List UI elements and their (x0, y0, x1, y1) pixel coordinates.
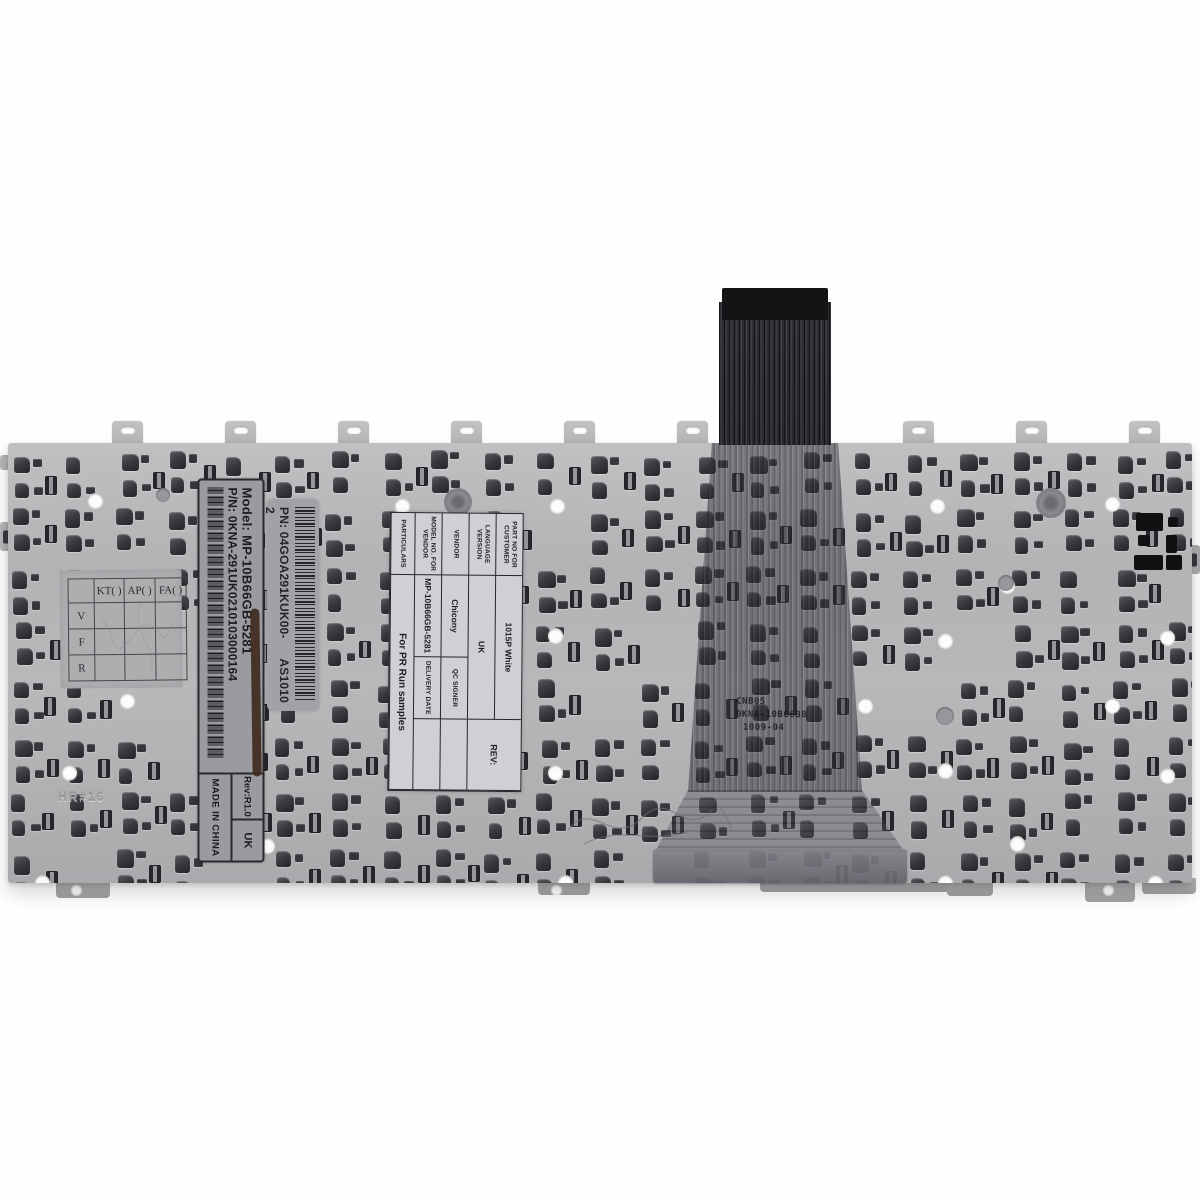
plate-hole (1103, 884, 1114, 895)
key-hook-square (665, 540, 675, 548)
mounting-tab-slot (1024, 426, 1039, 434)
key-hook (333, 477, 349, 493)
plate-hole (1148, 875, 1163, 883)
key-hook (536, 853, 551, 871)
key-hook-square (876, 765, 885, 774)
key-hook-square (664, 513, 673, 520)
key-hook (590, 567, 605, 584)
key-hook (642, 684, 660, 702)
key-hook-square (351, 454, 359, 462)
key-hook-square (35, 626, 45, 634)
spec-qc-signer-cell: QC SIGNER (440, 657, 468, 719)
key-slot (570, 590, 582, 608)
key-hook-square (32, 510, 41, 518)
key-hook (15, 708, 30, 725)
key-hook (910, 852, 924, 870)
cable-stamp-line3: 1009-04 (736, 722, 807, 736)
key-hook (1060, 571, 1077, 589)
key-hook-square (345, 544, 355, 551)
key-hook-square (1031, 571, 1041, 579)
key-hook (853, 651, 866, 666)
key-hook (485, 880, 499, 883)
key-hook-square (346, 627, 355, 634)
key-hook (326, 540, 343, 557)
key-hook-square (1030, 766, 1038, 774)
key-hook (432, 476, 449, 493)
key-hook (327, 623, 344, 640)
mounting-tab-slot (911, 426, 926, 434)
key-hook (911, 821, 927, 838)
key-hook (15, 483, 29, 499)
key-hook-square (664, 572, 673, 580)
key-slot (890, 532, 902, 551)
key-hook (123, 818, 137, 834)
key-hook (960, 454, 978, 470)
key-hook-square (136, 538, 144, 547)
key-hook (170, 451, 187, 469)
key-hook-square (1189, 652, 1192, 660)
key-hook (1119, 596, 1134, 612)
key-hook-square (1034, 855, 1043, 863)
plate-hole (551, 884, 562, 895)
key-hook (328, 594, 341, 611)
key-hook-square (557, 575, 566, 583)
plate-hole (88, 493, 103, 508)
key-hook (332, 793, 347, 811)
key-hook-square (1080, 628, 1090, 636)
key-hook (644, 458, 660, 477)
key-hook (645, 569, 660, 587)
key-slot (987, 758, 999, 777)
key-hook-square (351, 742, 361, 749)
origin-cell: MADE IN CHINA (200, 775, 231, 861)
key-hook-square (344, 516, 352, 524)
plate-cutout (1166, 535, 1177, 553)
key-hook-square (615, 769, 624, 777)
key-hook (386, 822, 403, 839)
key-hook (277, 820, 293, 837)
key-hook (1061, 626, 1079, 643)
spec-row-label-2: VENDOR (441, 513, 469, 575)
key-hook (539, 597, 556, 612)
plate-cutout (1168, 517, 1178, 527)
key-hook-square (33, 459, 42, 468)
key-hook (909, 762, 926, 779)
key-hook-square (296, 881, 305, 883)
key-hook-square (977, 539, 986, 548)
key-hook-square (456, 825, 465, 832)
rev-cell: Rev:R1.0 (231, 775, 263, 821)
key-hook-square (875, 738, 883, 746)
key-slot (987, 587, 999, 606)
key-hook (333, 764, 348, 780)
key-hook-square (1084, 511, 1093, 518)
key-slot (148, 762, 160, 780)
key-hook (275, 456, 290, 473)
key-hook (436, 849, 450, 866)
key-hook (1015, 478, 1031, 495)
spec-row-label-1: LANGUAGE VERSION (468, 514, 496, 576)
key-hook-square (1086, 456, 1096, 464)
language-cell: UK (231, 821, 263, 861)
key-hook-square (90, 824, 99, 832)
key-hook-square (35, 770, 44, 778)
key-hook (591, 514, 608, 532)
key-hook (592, 540, 608, 555)
key-hook-square (1087, 483, 1096, 491)
key-hook (437, 821, 450, 838)
key-hook-square (295, 486, 305, 493)
key-hook-square (981, 713, 989, 722)
key-hook-square (661, 686, 669, 695)
plate-hole (548, 628, 563, 643)
key-slot (992, 872, 1004, 883)
key-slot (519, 817, 531, 835)
plate-hole (858, 698, 873, 713)
spec-row-label-4: PARTICULARS (390, 513, 415, 575)
key-hook (327, 568, 342, 584)
key-hook-square (87, 712, 96, 719)
key-hook-square (980, 857, 989, 866)
key-hook (68, 708, 82, 724)
key-hook (66, 457, 80, 475)
key-hook-square (561, 742, 570, 750)
key-hook-square (871, 629, 880, 637)
key-hook-square (34, 742, 43, 750)
key-hook-square (87, 744, 95, 752)
key-hook-square (922, 574, 930, 582)
key-hook-square (875, 515, 884, 523)
key-slot (672, 703, 684, 722)
key-hook (1009, 706, 1023, 723)
key-hook (905, 515, 921, 534)
spec-particulars-value: For PR Run samples (388, 575, 414, 790)
key-hook-square (1085, 539, 1094, 547)
key-hook (66, 535, 82, 552)
model-pn-label-side: Rev:R1.0 UK MADE IN CHINA (200, 775, 263, 861)
key-slot (576, 760, 588, 780)
key-hook (1166, 451, 1182, 469)
key-hook (963, 795, 979, 813)
key-hook (12, 820, 25, 837)
key-hook (1116, 880, 1131, 883)
key-slot (42, 813, 54, 830)
key-hook-square (504, 455, 513, 464)
key-hook-square (1187, 855, 1192, 863)
plate-hole (550, 498, 565, 513)
key-hook (171, 477, 184, 493)
key-hook (1113, 509, 1128, 528)
spec-row-value-2: Chicony (440, 575, 468, 657)
key-hook-square (610, 518, 619, 527)
key-hook-square (294, 741, 303, 749)
key-hook (646, 595, 661, 611)
key-slot (887, 750, 899, 769)
key-hook (171, 819, 185, 835)
qc-check-table: KT( ) AP( ) FA( ) V F R (59, 569, 182, 688)
plate-cutout (1166, 555, 1182, 570)
key-hook (276, 482, 292, 498)
key-hook-square (870, 573, 879, 581)
mounting-tab-slot (346, 426, 361, 434)
key-slot (569, 467, 581, 485)
key-hook-square (924, 657, 932, 664)
key-hook (539, 705, 556, 722)
key-hook-square (295, 797, 304, 805)
key-hook-square (404, 881, 414, 883)
key-hook-square (979, 457, 988, 466)
key-hook (118, 875, 133, 883)
key-hook-square (294, 459, 304, 468)
key-hook (14, 534, 30, 551)
plate-hole (71, 884, 82, 895)
key-hook-square (346, 572, 356, 580)
plate-hole (548, 765, 563, 780)
key-hook-square (1034, 541, 1043, 548)
key-hook-square (142, 484, 151, 491)
key-slot (885, 473, 897, 491)
key-hook (437, 875, 451, 883)
key-hook (962, 879, 975, 883)
vendor-pn-barcode (295, 507, 315, 700)
key-hook (1065, 509, 1079, 526)
model-barcode (208, 488, 224, 760)
key-hook (276, 794, 293, 812)
key-hook-square (33, 683, 43, 690)
plate-hole (938, 875, 953, 883)
key-hook-square (34, 712, 44, 720)
key-slot (1149, 584, 1161, 603)
key-slot (624, 472, 636, 489)
key-hook-square (455, 798, 464, 806)
key-slot (100, 810, 112, 829)
rivet-disc (998, 575, 1014, 591)
key-hook-square (1138, 822, 1146, 830)
key-hook (595, 739, 610, 757)
key-hook (961, 853, 978, 870)
key-slot (1147, 757, 1159, 777)
key-hook (1169, 880, 1183, 883)
key-hook-square (975, 743, 983, 750)
key-hook (595, 628, 612, 646)
mounting-tab-slot (1137, 426, 1152, 434)
key-slot (47, 759, 59, 777)
plate-hole (1105, 496, 1120, 511)
key-hook (1115, 854, 1130, 873)
model-pn-label: Model: MP-10B66GB-5281 P/N: 0KNA-291UK02… (198, 479, 265, 863)
plate-hole (395, 498, 410, 513)
mounting-tab-slot (685, 426, 700, 434)
key-hook-square (32, 601, 40, 609)
key-hook (957, 765, 972, 781)
key-hook-square (503, 858, 511, 865)
key-hook (1170, 819, 1185, 836)
key-hook (856, 479, 871, 494)
key-slot (568, 642, 580, 661)
rivet-disc (156, 488, 170, 502)
key-hook (903, 571, 918, 588)
key-hook (908, 455, 922, 474)
plate-hole (62, 765, 77, 780)
key-hook-square (923, 629, 933, 636)
key-hook-square (352, 823, 360, 830)
key-hook-square (660, 740, 669, 748)
key-hook (14, 457, 31, 474)
key-hook-square (296, 824, 304, 832)
key-slot (620, 582, 632, 599)
key-hook (961, 683, 977, 699)
key-hook (1060, 852, 1075, 868)
key-hook (538, 679, 556, 698)
key-hook (645, 484, 660, 501)
key-hook (908, 736, 926, 753)
key-hook-square (455, 853, 464, 860)
key-hook (909, 481, 922, 496)
key-hook-square (1137, 458, 1146, 465)
key-hook (332, 738, 349, 756)
key-slot (937, 535, 949, 553)
key-hook (67, 483, 80, 499)
key-hook-square (1084, 773, 1093, 782)
key-hook-square (31, 574, 40, 582)
key-hook-square (983, 825, 993, 833)
key-hook-square (351, 795, 360, 804)
key-hook-square (349, 852, 359, 860)
key-hook-square (1081, 656, 1089, 663)
key-hook-square (925, 545, 934, 553)
key-hook-square (1032, 600, 1042, 609)
key-hook-square (871, 601, 880, 609)
key-hook (276, 764, 290, 779)
key-hook (1015, 625, 1031, 642)
plate-hole (930, 498, 945, 513)
key-slot (940, 470, 952, 487)
key-hook (13, 597, 29, 615)
key-hook-square (85, 539, 93, 548)
pencil-scribble (560, 788, 770, 858)
key-hook (958, 535, 973, 553)
key-hook-square (505, 483, 514, 490)
key-hook (1068, 479, 1082, 497)
key-hook-square (1081, 687, 1090, 694)
key-hook-square (141, 796, 150, 803)
key-hook (385, 453, 402, 470)
key-hook (855, 453, 870, 469)
key-hook-square (31, 824, 41, 831)
key-hook-square (610, 457, 620, 465)
key-hook-square (1185, 454, 1192, 461)
key-hook-square (1033, 456, 1042, 464)
key-hook (641, 739, 655, 757)
key-hook (956, 569, 972, 587)
key-hook (957, 595, 972, 610)
key-hook (904, 627, 921, 644)
key-hook (961, 480, 975, 497)
key-hook-square (664, 488, 674, 497)
key-hook-square (1029, 739, 1038, 747)
key-hook (905, 653, 920, 671)
key-hook (910, 795, 927, 812)
key-hook (906, 541, 923, 557)
spec-rev-cell: REV: (466, 720, 521, 791)
key-slot (678, 526, 690, 545)
key-hook (537, 819, 550, 835)
key-hook (14, 856, 30, 875)
spec-delivery-date-blank (412, 719, 440, 790)
key-hook-square (1080, 882, 1088, 883)
spec-row-value-1: UK (467, 576, 495, 720)
key-hook (15, 740, 33, 757)
key-hook-square (347, 653, 356, 660)
key-hook (277, 877, 290, 883)
key-hook (488, 797, 505, 814)
key-hook-square (136, 851, 145, 858)
mounting-tab-slot (459, 426, 474, 434)
qc-grid-scribble (90, 593, 181, 684)
key-hook (1118, 792, 1136, 810)
key-hook (1064, 743, 1081, 761)
key-hook-square (1188, 626, 1192, 633)
key-slot (1093, 642, 1105, 661)
key-hook-square (615, 658, 624, 666)
plate-hole (558, 875, 573, 883)
key-hook (71, 820, 86, 837)
key-hook (542, 740, 559, 757)
key-hook (591, 456, 609, 474)
key-hook-square (1188, 739, 1192, 746)
key-hook (1170, 648, 1185, 663)
key-hook (596, 654, 610, 671)
screw-boss (1036, 488, 1066, 518)
key-hook (596, 765, 612, 783)
key-slot (418, 865, 430, 883)
key-hook (385, 796, 400, 814)
key-hook (68, 741, 84, 758)
key-hook-square (295, 854, 304, 862)
vendor-pn-label: PN: 04GOA291KUK00-2 AS1010 (267, 499, 319, 711)
key-hook (1010, 736, 1026, 752)
key-hook-square (1079, 854, 1089, 862)
key-hook-square (1035, 655, 1044, 663)
key-hook-square (1190, 538, 1192, 547)
key-hook (1014, 452, 1030, 470)
key-hook (1065, 769, 1081, 786)
key-hook-square (405, 483, 413, 491)
key-hook (176, 881, 190, 883)
key-hook (904, 597, 918, 615)
key-hook (1016, 651, 1033, 668)
key-hook (486, 479, 501, 496)
key-hook-square (980, 484, 990, 492)
key-hook (16, 766, 29, 783)
key-hook-square (34, 487, 43, 495)
key-hook-square (976, 769, 985, 778)
key-hook (964, 821, 977, 838)
key-hook (857, 539, 871, 557)
part-number-text: P/N: 0KNA-291UK0210103000164 (226, 488, 240, 767)
key-slot (359, 641, 371, 658)
key-hook-square (350, 879, 358, 883)
key-hook (17, 648, 32, 666)
key-hook (1118, 456, 1133, 475)
key-hook (1011, 762, 1027, 778)
key-hook-square (1138, 600, 1148, 608)
key-hook-square (558, 709, 566, 718)
key-hook (65, 509, 80, 528)
key-slot (416, 467, 428, 486)
key-hook (276, 851, 292, 868)
key-hook (1062, 652, 1079, 669)
